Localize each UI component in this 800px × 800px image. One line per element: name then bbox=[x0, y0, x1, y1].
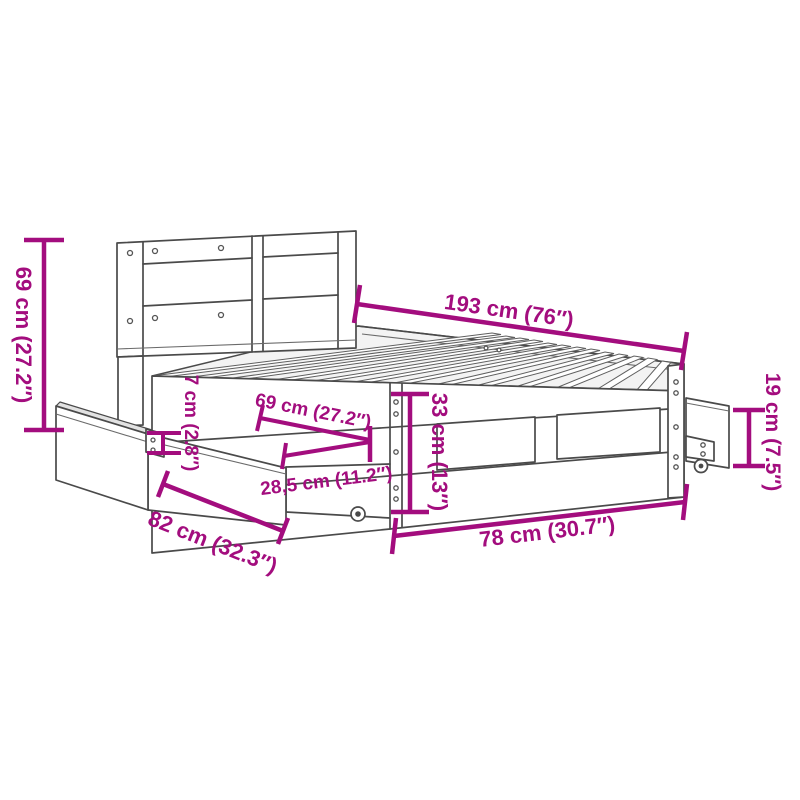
screw-hole bbox=[394, 400, 398, 404]
screw-hole bbox=[484, 346, 488, 350]
screw-hole bbox=[394, 412, 398, 416]
screw-hole bbox=[219, 246, 224, 251]
dimension-drawer-height: 19 cm (7.5″) bbox=[733, 373, 784, 492]
screw-hole bbox=[153, 249, 158, 254]
dimension-label: 7 cm (2.8″) bbox=[180, 375, 201, 472]
dimension-label: 69 cm (27.2″) bbox=[11, 267, 36, 404]
drawer-front-outline bbox=[557, 408, 660, 459]
foot-drawer bbox=[686, 398, 729, 473]
screw-hole bbox=[674, 465, 678, 469]
caster-axle bbox=[355, 511, 361, 517]
screw-hole bbox=[497, 348, 501, 352]
screw-hole bbox=[128, 251, 133, 256]
caster-axle bbox=[699, 464, 704, 469]
screw-hole bbox=[153, 316, 158, 321]
bed-dimension-diagram: 69 cm (27.2″) 193 cm (76″) 69 cm (27.2″)… bbox=[0, 0, 800, 800]
diagram-canvas: 69 cm (27.2″) 193 cm (76″) 69 cm (27.2″)… bbox=[0, 0, 800, 800]
dimension-headboard-height: 69 cm (27.2″) bbox=[11, 240, 64, 430]
screw-hole bbox=[219, 313, 224, 318]
screw-hole bbox=[394, 497, 398, 501]
dimension-label: 19 cm (7.5″) bbox=[761, 373, 784, 492]
screw-hole bbox=[674, 455, 678, 459]
screw-hole bbox=[674, 391, 678, 395]
screw-hole bbox=[394, 450, 398, 454]
headboard-leg bbox=[118, 356, 143, 426]
screw-hole bbox=[674, 425, 678, 429]
screw-hole bbox=[394, 486, 398, 490]
screw-hole bbox=[701, 452, 705, 456]
screw-hole bbox=[674, 380, 678, 384]
screw-hole bbox=[151, 438, 155, 442]
screw-hole bbox=[128, 319, 133, 324]
screw-hole bbox=[701, 443, 705, 447]
dimension-label: 33 cm (13″) bbox=[427, 393, 452, 511]
